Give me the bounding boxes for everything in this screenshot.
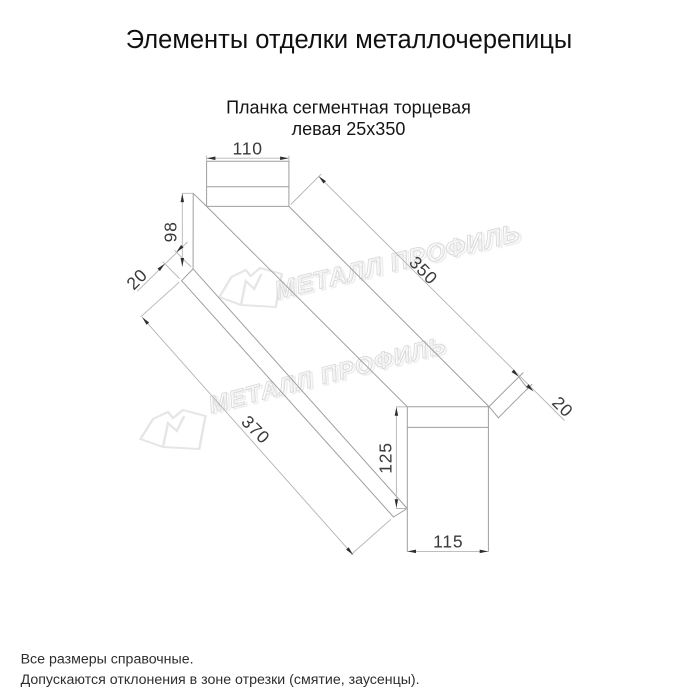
svg-text:125: 125 xyxy=(376,442,396,474)
svg-text:Элементы отделки металлочерепи: Элементы отделки металлочерепицы xyxy=(126,26,572,54)
svg-text:левая 25х350: левая 25х350 xyxy=(292,119,406,139)
svg-text:115: 115 xyxy=(433,532,463,552)
svg-text:Все размеры справочные.: Все размеры справочные. xyxy=(21,652,194,668)
svg-text:110: 110 xyxy=(233,139,263,159)
svg-text:98: 98 xyxy=(161,221,181,242)
svg-text:Допускаются отклонения в зоне: Допускаются отклонения в зоне отрезки (с… xyxy=(21,672,420,688)
svg-text:Планка сегментная торцевая: Планка сегментная торцевая xyxy=(226,98,471,118)
